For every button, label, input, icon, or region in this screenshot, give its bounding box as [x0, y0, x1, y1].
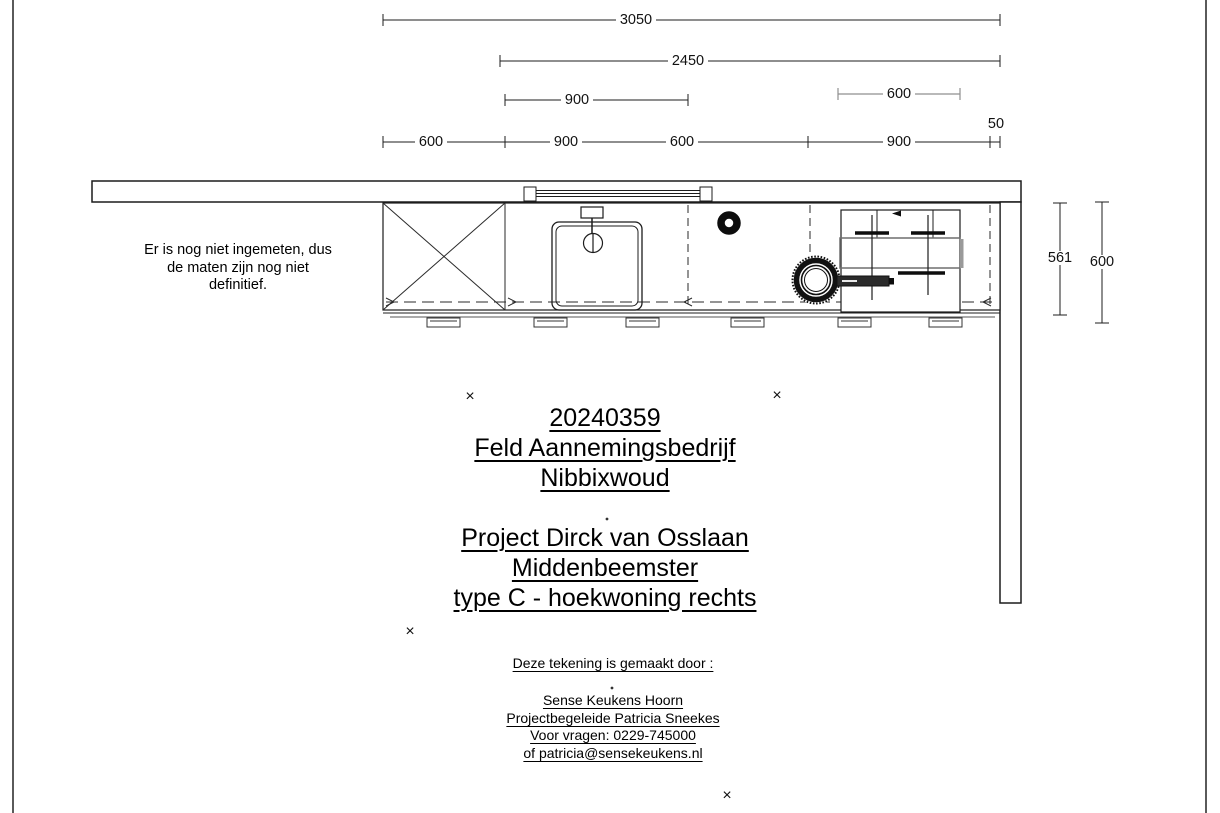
- pan-handle: [837, 276, 894, 286]
- dim-label-seg2: 900: [554, 134, 578, 150]
- project-number: 20240359: [355, 403, 855, 433]
- credits-heading: Deze tekening is gemaakt door :: [413, 655, 813, 673]
- x-marker-icon: ×: [405, 623, 414, 640]
- dim-label-end-gap: 50: [988, 116, 1004, 132]
- dim-label-sink-cabinet: 900: [565, 92, 589, 108]
- dim-label-seg3: 600: [670, 134, 694, 150]
- note-line: Er is nog niet ingemeten, dus: [122, 242, 354, 260]
- wall-right: [1000, 202, 1021, 603]
- wall-top: [92, 181, 1021, 202]
- dim-labels-top: 3050 2450 900 600 600 900 600 900 50: [415, 12, 1004, 150]
- dim-label-total-depth: 600: [1090, 254, 1114, 270]
- client-name: Feld Aannemingsbedrijf: [355, 433, 855, 463]
- credits-company: Sense Keukens Hoorn: [413, 692, 813, 710]
- project-city: Middenbeemster: [355, 553, 855, 583]
- project-details: Project Dirck van Osslaan Middenbeemster…: [355, 523, 855, 613]
- house-type: type C - hoekwoning rechts: [355, 583, 855, 613]
- dim-right-run: [500, 55, 1000, 67]
- dim-labels-right: 561 600: [1045, 250, 1117, 270]
- credits-contact: Projectbegeleide Patricia Sneekes: [413, 710, 813, 728]
- plinth-feet: [427, 318, 962, 327]
- dim-label-right-run: 2450: [672, 53, 704, 69]
- credits-heading-block: Deze tekening is gemaakt door :: [413, 655, 813, 673]
- credits-block: Sense Keukens Hoorn Projectbegeleide Pat…: [413, 692, 813, 762]
- dim-label-total: 3050: [620, 12, 652, 28]
- dim-total-width: [383, 14, 1000, 26]
- client-city: Nibbixwoud: [355, 463, 855, 493]
- x-marker-icon: ×: [772, 387, 781, 404]
- dim-label-seg1: 600: [419, 134, 443, 150]
- project-name: Project Dirck van Osslaan: [355, 523, 855, 553]
- note-line: definitief.: [122, 277, 354, 295]
- hob: [840, 210, 964, 312]
- credits-email: of patricia@sensekeukens.nl: [413, 745, 813, 763]
- dim-sink-cabinet: [505, 94, 688, 106]
- dim-label-hob: 600: [887, 86, 911, 102]
- note-line: de maten zijn nog niet: [122, 260, 354, 278]
- dim-label-counter-depth: 561: [1048, 250, 1072, 266]
- x-marker-icon: ×: [722, 787, 731, 804]
- drawing-sheet: 3050 2450 900 600 600 900 600 900 50: [0, 0, 1220, 813]
- dim-label-seg4: 900: [887, 134, 911, 150]
- credits-phone: Voor vragen: 0229-745000: [413, 727, 813, 745]
- project-header: 20240359 Feld Aannemingsbedrijf Nibbixwo…: [355, 403, 855, 493]
- measurement-note: Er is nog niet ingemeten, dus de maten z…: [122, 242, 354, 295]
